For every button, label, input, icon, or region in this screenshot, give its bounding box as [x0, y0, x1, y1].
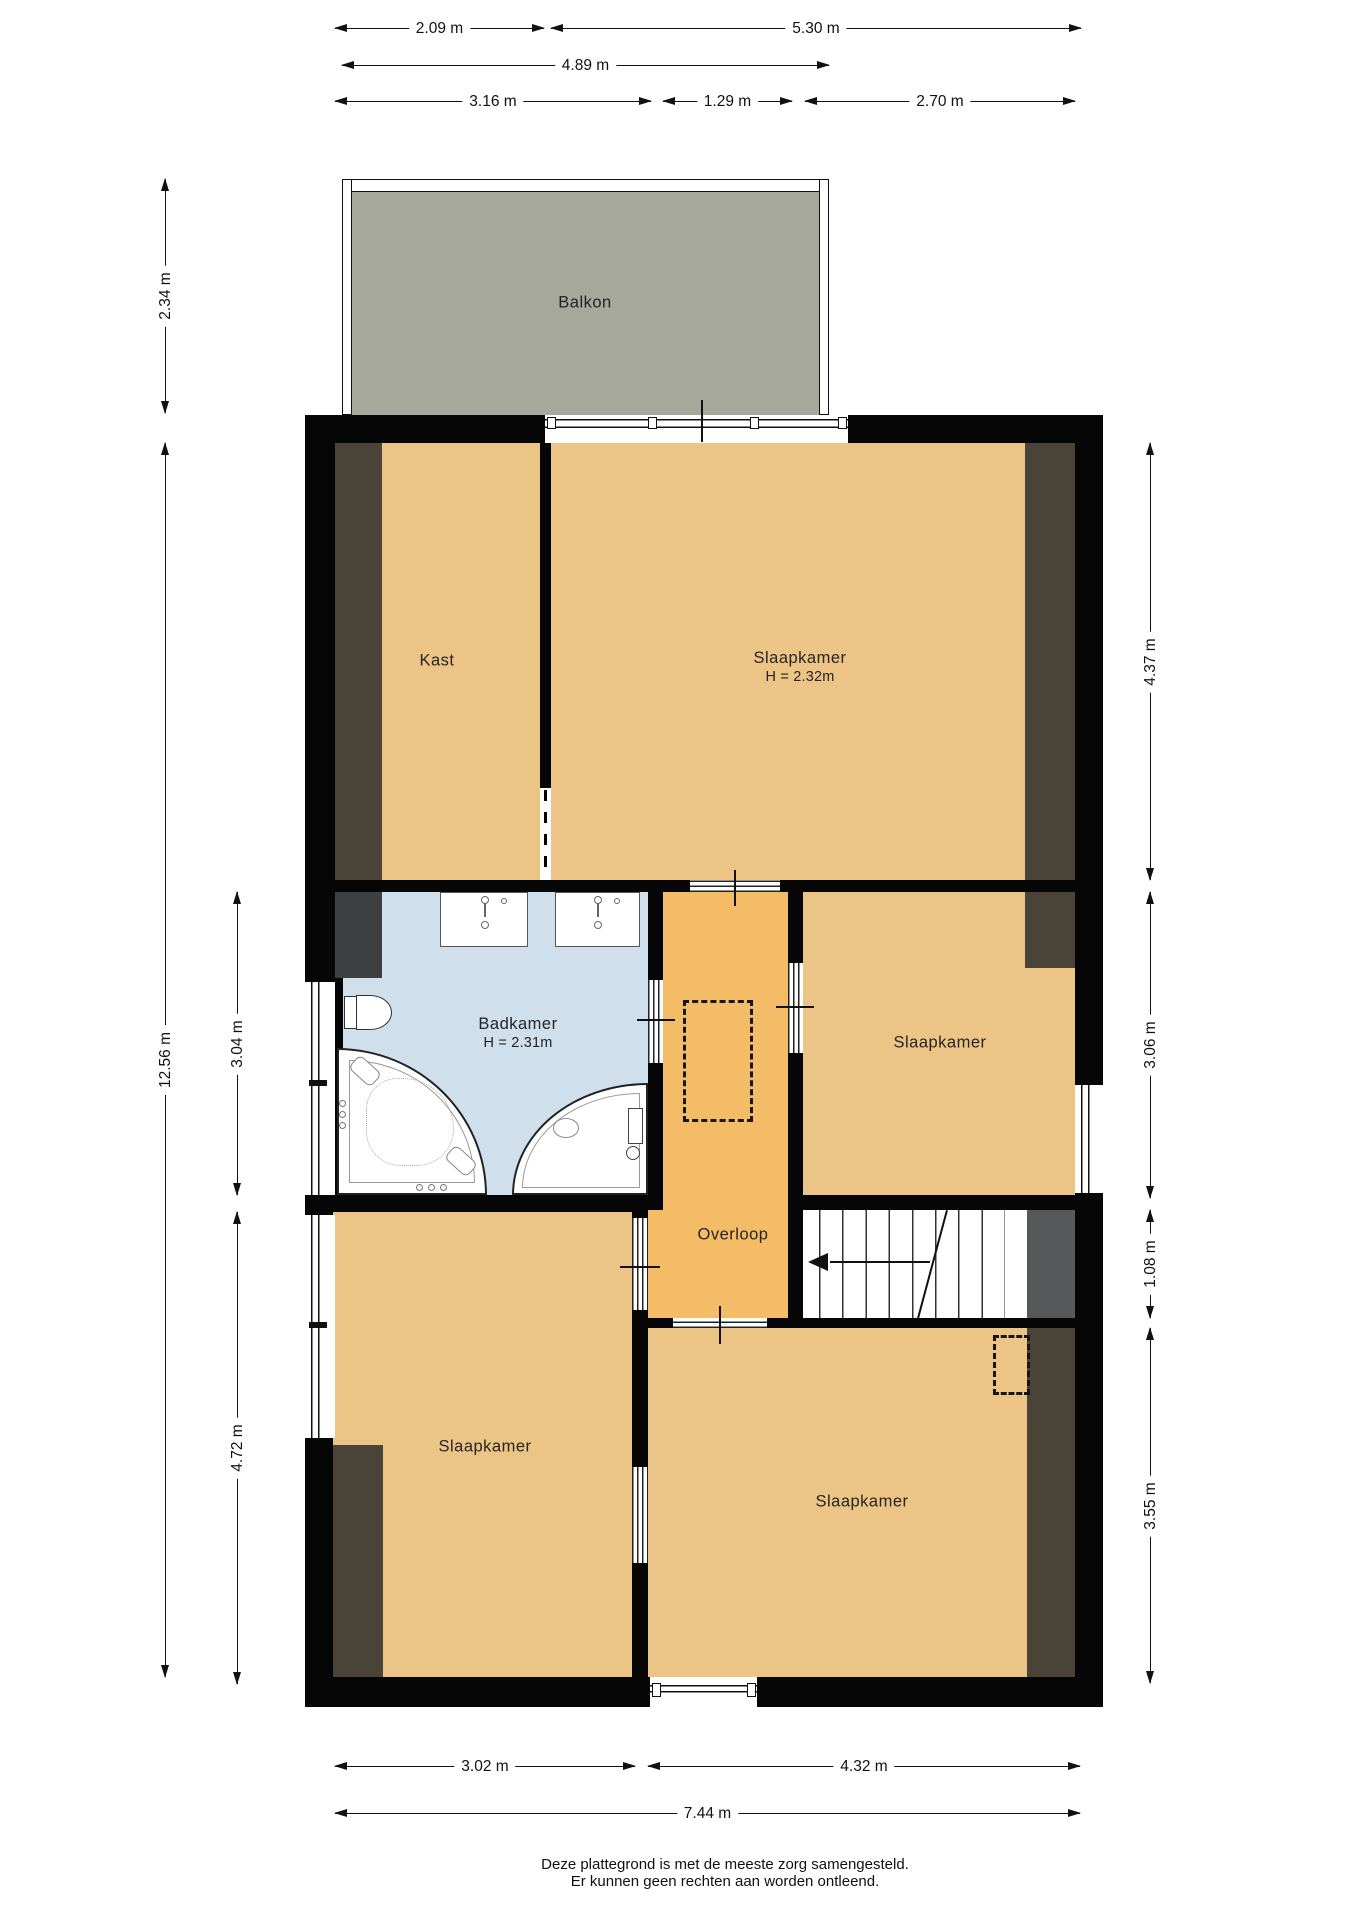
dimension-label: 2.34 m: [157, 265, 175, 326]
floorplan-page: Balkon: [0, 0, 1358, 1920]
stair-direction-line: [830, 1261, 930, 1263]
dimension-label: 4.32 m: [833, 1758, 894, 1776]
faucet-stem-icon: [597, 903, 599, 917]
attic-strip-kast: [335, 443, 382, 880]
dimension-label: 3.04 m: [229, 1013, 247, 1074]
slaapkamer-linksonder-name: Slaapkamer: [438, 1438, 531, 1456]
dimension-label: 4.37 m: [1142, 631, 1160, 692]
tick-door-badkamer: [637, 1019, 675, 1021]
slaapkamer-midden-name: Slaapkamer: [893, 1034, 986, 1052]
staircase: [803, 1210, 1027, 1318]
window-slaapkamer-midden-right: [1075, 1085, 1103, 1193]
door-tussen-slaapkamers: [632, 1467, 648, 1563]
tick-door-slaapkamer-midden: [776, 1006, 814, 1008]
window-badkamer-mullion: [309, 1080, 327, 1086]
dimension-left-472: 4.72 m: [237, 1212, 238, 1684]
bath-jet: [339, 1100, 346, 1107]
tick-balcony-door: [701, 400, 703, 442]
dimension-left-1256: 12.56 m: [165, 443, 166, 1677]
bath-jet: [339, 1122, 346, 1129]
balcony-railing-right: [819, 179, 829, 415]
stair-treads-icon: [819, 1210, 1005, 1318]
window-badkamer-left: [305, 982, 335, 1195]
room-label-balkon: Balkon: [558, 294, 611, 313]
dimension-bottom-432: 4.32 m: [648, 1766, 1080, 1767]
shower-knob-icon: [626, 1146, 640, 1160]
kast-opening-dashes: [544, 790, 547, 878]
room-label-badkamer: Badkamer H = 2.31m: [478, 1015, 557, 1053]
door-badkamer: [648, 980, 663, 1063]
dimension-label: 5.30 m: [785, 20, 846, 38]
slaapkamer-boven-name: Slaapkamer: [753, 649, 846, 667]
room-label-slaapkamer-linksonder: Slaapkamer: [438, 1438, 531, 1457]
bottom-window-cap-left: [652, 1683, 661, 1697]
dimension-label: 3.06 m: [1142, 1014, 1160, 1075]
drain-icon: [481, 921, 489, 929]
dimension-top-209: 2.09 m: [335, 28, 544, 29]
dimension-label: 2.70 m: [909, 93, 970, 111]
dimension-label: 2.09 m: [409, 20, 470, 38]
slaapkamer-rechtsonder-name: Slaapkamer: [815, 1493, 908, 1511]
window-balcony-doors: [545, 415, 848, 443]
balkon-name: Balkon: [558, 294, 611, 312]
vide-dashed-outline: [683, 1000, 753, 1122]
bottom-window-cap-right: [747, 1683, 756, 1697]
dimension-label: 7.44 m: [677, 1805, 738, 1823]
bathroom-grey-block: [335, 892, 382, 978]
dimension-label: 1.29 m: [697, 93, 758, 111]
tap-dot-icon: [614, 898, 620, 904]
balcony-door-cap-left: [547, 417, 556, 429]
shower-drain-icon: [553, 1118, 579, 1138]
bath-jet: [339, 1111, 346, 1118]
slaapkamer-boven-height: H = 2.32m: [753, 668, 846, 687]
window-slaapkamer-rechtsonder-bottom: [650, 1677, 757, 1707]
overloop-name: Overloop: [698, 1226, 769, 1244]
dimension-right-437: 4.37 m: [1150, 443, 1151, 880]
attic-strip-slaapkamer-boven: [1025, 443, 1075, 880]
balcony-door-cap-right: [838, 417, 847, 429]
room-label-slaapkamer-rechtsonder: Slaapkamer: [815, 1493, 908, 1512]
dimension-top-489: 4.89 m: [342, 65, 829, 66]
attic-strip-slaapkamer-linksonder: [333, 1445, 383, 1677]
door-slaapkamer-midden: [788, 963, 803, 1053]
sink-left: [440, 892, 528, 947]
tick-door-rechtsonder: [719, 1306, 721, 1344]
balcony-door-mullion-1: [648, 417, 657, 429]
dashed-marker-rechtsonder: [993, 1335, 1030, 1395]
balcony-railing-top: [342, 179, 829, 192]
bath-jet: [440, 1184, 447, 1191]
room-label-slaapkamer-midden: Slaapkamer: [893, 1034, 986, 1053]
dimension-label: 1.08 m: [1142, 1233, 1160, 1294]
dimension-label: 4.72 m: [229, 1417, 247, 1478]
dimension-left-304: 3.04 m: [237, 892, 238, 1195]
room-label-kast: Kast: [419, 652, 454, 671]
shower-mixer-icon: [628, 1108, 643, 1144]
disclaimer-line2: Er kunnen geen rechten aan worden ontlee…: [541, 1873, 909, 1890]
drain-icon: [594, 921, 602, 929]
dimension-label: 12.56 m: [157, 1025, 175, 1095]
dimension-left-234: 2.34 m: [165, 179, 166, 413]
badkamer-name: Badkamer: [478, 1015, 557, 1033]
door-slaapkamer-linksonder: [632, 1218, 648, 1310]
dimension-top-530: 5.30 m: [551, 28, 1081, 29]
dimension-bottom-744: 7.44 m: [335, 1813, 1080, 1814]
faucet-stem-icon: [484, 903, 486, 917]
dimension-top-129: 1.29 m: [663, 101, 792, 102]
dimension-top-270: 2.70 m: [805, 101, 1075, 102]
sink-right: [555, 892, 640, 947]
bath-jet: [416, 1184, 423, 1191]
dimension-label: 3.16 m: [462, 93, 523, 111]
dimension-label: 3.02 m: [454, 1758, 515, 1776]
stair-void: [1027, 1210, 1075, 1318]
room-label-overloop: Overloop: [698, 1226, 769, 1245]
kast-name: Kast: [419, 652, 454, 670]
balcony-railing-left: [342, 179, 352, 415]
dimension-right-355: 3.55 m: [1150, 1328, 1151, 1683]
badkamer-height: H = 2.31m: [478, 1034, 557, 1053]
disclaimer: Deze plattegrond is met de meeste zorg s…: [541, 1856, 909, 1890]
tick-door-linksonder: [620, 1266, 660, 1268]
attic-strip-slaapkamer-rechtsonder: [1027, 1328, 1075, 1677]
window-linksonder-mullion: [309, 1322, 327, 1328]
bath-jet: [428, 1184, 435, 1191]
tap-dot-icon: [501, 898, 507, 904]
balcony-door-mullion-2: [750, 417, 759, 429]
dimension-right-306: 3.06 m: [1150, 892, 1151, 1198]
disclaimer-line1: Deze plattegrond is met de meeste zorg s…: [541, 1856, 909, 1873]
tick-door-slaapkamerboven: [734, 870, 736, 906]
room-label-slaapkamer-boven: Slaapkamer H = 2.32m: [753, 649, 846, 687]
dimension-label: 4.89 m: [555, 57, 616, 75]
attic-strip-slaapkamer-midden: [1025, 892, 1075, 968]
dimension-right-108: 1.08 m: [1150, 1210, 1151, 1318]
dimension-bottom-302: 3.02 m: [335, 1766, 635, 1767]
dimension-top-316: 3.16 m: [335, 101, 651, 102]
stair-arrow-icon: [808, 1253, 828, 1271]
dimension-label: 3.55 m: [1142, 1475, 1160, 1536]
